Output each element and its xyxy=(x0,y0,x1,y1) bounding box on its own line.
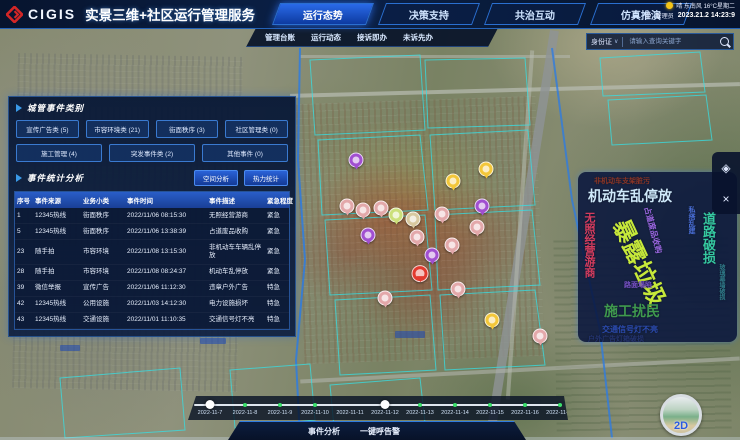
search-type-dropdown[interactable]: 身份证 ∨ xyxy=(591,37,618,47)
table-cell: 占道废品收购 xyxy=(209,228,267,236)
timeline-tick xyxy=(523,403,527,407)
timeline-date: 2022-11-17 xyxy=(546,410,568,416)
table-cell: 紧急 xyxy=(267,212,293,220)
table-header-cell: 事件来源 xyxy=(35,195,83,205)
table-cell: 特急 xyxy=(267,284,293,292)
table-cell: 12345热线 xyxy=(35,300,83,308)
table-cell: 特急 xyxy=(267,316,293,324)
timeline-date: 2022-11-16 xyxy=(511,410,539,416)
map-marker[interactable] xyxy=(356,203,371,218)
category-button[interactable]: 宣传广告类 (5) xyxy=(16,120,79,138)
category-row: 施工管理 (4)突发事件类 (2)其他事件 (0) xyxy=(9,141,295,165)
map-marker[interactable] xyxy=(389,208,404,223)
table-row[interactable]: 4312345热线交通设施2022/11/01 11:10:35交通信号灯不亮特… xyxy=(15,313,289,329)
table-cell: 特急 xyxy=(267,300,293,308)
category-button[interactable]: 市容环境类 (21) xyxy=(86,120,149,138)
table-header-cell: 事件描述 xyxy=(209,195,267,205)
map-marker[interactable] xyxy=(406,212,421,227)
table-cell: 紧急 xyxy=(267,228,293,236)
map-marker[interactable] xyxy=(374,201,389,216)
heat-statistics-button[interactable]: 热力统计 xyxy=(244,170,288,186)
table-cell: 23 xyxy=(17,248,35,256)
table-cell: 紧急 xyxy=(267,248,293,256)
tab-label: 共治互动 xyxy=(515,7,555,22)
timeline-date: 2022-11-15 xyxy=(476,410,504,416)
table-cell: 28 xyxy=(17,268,35,276)
subtab-operation-dynamics[interactable]: 运行动态 xyxy=(311,32,341,43)
dashboard-root: CIGIS 实景三维+社区运行管理服务 运行态势决策支持共治互动仿真推演 晴 东… xyxy=(0,0,740,440)
event-panel: 城管事件类别 宣传广告类 (5)市容环境类 (21)街面秩序 (3)社区管理类 … xyxy=(8,96,296,337)
table-cell: 43 xyxy=(17,316,35,324)
timeline-date: 2022-11-10 xyxy=(301,410,329,416)
chevron-down-icon: ∨ xyxy=(614,38,618,45)
timeline-track[interactable] xyxy=(194,404,562,406)
stats-actions: 空间分析 热力统计 xyxy=(194,170,288,186)
category-buttons: 宣传广告类 (5)市容环境类 (21)街面秩序 (3)社区管理类 (0)施工管理… xyxy=(9,117,295,165)
user-row: ⚙ 管理员 2023.21.2 14:23:9 xyxy=(645,11,735,20)
timeline-date: 2022-11-13 xyxy=(406,410,434,416)
section-title: 事件统计分析 xyxy=(27,172,84,184)
table-row[interactable]: 512345热线街面秩序2022/11/06 13:38:39占道废品收购紧急 xyxy=(15,224,289,240)
map-marker[interactable] xyxy=(378,291,393,306)
bottom-action-bar: 事件分析 一键呼告警 xyxy=(228,421,526,440)
gear-icon[interactable]: ⚙ xyxy=(645,11,652,20)
map-mode-compass[interactable]: 2D xyxy=(660,394,702,436)
table-cell: 交通信号灯不亮 xyxy=(209,316,267,324)
timeline-date: 2022-11-14 xyxy=(441,410,469,416)
tab-label: 决策支持 xyxy=(409,7,449,22)
one-key-alarm-button[interactable]: 一键呼告警 xyxy=(360,426,400,437)
sun-icon xyxy=(666,2,673,9)
event-table: 序号事件来源业务小类事件时间事件描述紧急程度 112345热线街面秩序2022/… xyxy=(14,191,290,330)
map-marker[interactable] xyxy=(361,228,376,243)
map-marker[interactable] xyxy=(451,282,466,297)
map-tools-icon[interactable]: × xyxy=(722,193,729,205)
table-cell: 2022/11/06 11:12:30 xyxy=(127,284,209,292)
table-cell: 2022/11/01 11:10:35 xyxy=(127,316,209,324)
subtab-proactive-service[interactable]: 未诉先办 xyxy=(403,32,433,43)
table-cell: 宣传广告 xyxy=(83,284,127,292)
table-cell: 2022/11/06 13:38:39 xyxy=(127,228,209,236)
tab-decision-support[interactable]: 决策支持 xyxy=(378,3,480,25)
table-header-cell: 业务小类 xyxy=(83,195,127,205)
tab-operation-status[interactable]: 运行态势 xyxy=(272,3,374,25)
table-cell: 公用设施 xyxy=(83,300,127,308)
map-marker[interactable] xyxy=(425,248,440,263)
table-cell: 非机动车车辆乱停放 xyxy=(209,244,267,260)
table-cell: 5 xyxy=(17,228,35,236)
table-cell: 12345热线 xyxy=(35,316,83,324)
map-marker[interactable] xyxy=(533,329,548,344)
wordcloud-term[interactable]: 私搭乱建 xyxy=(688,206,695,234)
timeline-date: 2022-11-7 xyxy=(198,410,223,416)
table-cell: 39 xyxy=(17,284,35,292)
section-arrow-icon xyxy=(16,174,22,182)
map-marker[interactable] xyxy=(435,207,450,222)
search-type-label: 身份证 xyxy=(591,37,612,47)
timeline-date: 2022-11-8 xyxy=(233,410,258,416)
cigis-logo-icon xyxy=(6,6,23,23)
section-stats-header: 事件统计分析 空间分析 热力统计 xyxy=(9,165,295,189)
table-cell: 2022/11/08 13:15:30 xyxy=(127,248,209,256)
table-cell: 违章户外广告 xyxy=(209,284,267,292)
map-toolbar: ◈ × xyxy=(712,152,740,214)
map-mode-label: 2D xyxy=(674,420,688,432)
divider xyxy=(622,37,623,47)
category-button[interactable]: 社区管理类 (0) xyxy=(225,120,288,138)
wordcloud-term[interactable]: 玻璃幕墙破损 xyxy=(718,264,724,300)
table-cell: 2022/11/03 14:12:30 xyxy=(127,300,209,308)
map-marker[interactable] xyxy=(485,313,500,328)
category-row: 宣传广告类 (5)市容环境类 (21)街面秩序 (3)社区管理类 (0) xyxy=(9,117,295,141)
table-row[interactable]: 39微信举报宣传广告2022/11/06 11:12:30违章户外广告特急 xyxy=(15,281,289,297)
table-row[interactable]: 112345热线街面秩序2022/11/06 08:15:30无照经营游商紧急 xyxy=(15,208,289,224)
table-cell: 电力设施损坏 xyxy=(209,300,267,308)
table-body: 112345热线街面秩序2022/11/06 08:15:30无照经营游商紧急5… xyxy=(15,208,289,329)
header-status-block: 晴 东南风 16°C星期二 ⚙ 管理员 2023.21.2 14:23:9 xyxy=(645,1,735,20)
map-marker[interactable] xyxy=(349,153,364,168)
table-header-cell: 序号 xyxy=(17,195,35,205)
timeline-handle[interactable] xyxy=(206,400,215,409)
wordcloud-term[interactable]: 户外广告灯箱破损 xyxy=(588,336,644,342)
section-title: 城管事件类别 xyxy=(27,102,84,114)
map-marker[interactable] xyxy=(475,199,490,214)
table-cell: 1 xyxy=(17,212,35,220)
tab-label: 运行态势 xyxy=(303,7,343,22)
category-button[interactable]: 施工管理 (4) xyxy=(16,144,102,162)
layers-icon[interactable]: ◈ xyxy=(721,162,730,174)
search-icon[interactable] xyxy=(720,37,729,46)
wordcloud-term[interactable]: 施工扰民 xyxy=(604,304,660,318)
main-tabs: 运行态势决策支持共治互动仿真推演 xyxy=(276,3,688,25)
wordcloud-term[interactable]: 交通信号灯不亮 xyxy=(602,326,658,334)
table-header-cell: 紧急程度 xyxy=(267,195,293,205)
table-cell: 交通设施 xyxy=(83,316,127,324)
subtab-management-ledger[interactable]: 管理台账 xyxy=(265,32,295,43)
table-row[interactable]: 4212345热线公用设施2022/11/03 14:12:30电力设施损坏特急 xyxy=(15,297,289,313)
table-cell: 街面秩序 xyxy=(83,212,127,220)
wordcloud-term[interactable]: 暴露垃圾 xyxy=(609,216,669,309)
user-label: 管理员 xyxy=(656,11,674,20)
page-title: 实景三维+社区运行管理服务 xyxy=(85,4,255,24)
section-arrow-icon xyxy=(16,104,22,112)
table-header: 序号事件来源业务小类事件时间事件描述紧急程度 xyxy=(15,192,289,208)
table-cell: 随手拍 xyxy=(35,248,83,256)
map-marker[interactable] xyxy=(446,174,461,189)
search-input[interactable] xyxy=(627,37,716,46)
table-header-cell: 事件时间 xyxy=(127,195,209,205)
category-button[interactable]: 其他事件 (0) xyxy=(202,144,288,162)
spatial-analysis-button[interactable]: 空间分析 xyxy=(194,170,238,186)
app-header: CIGIS 实景三维+社区运行管理服务 运行态势决策支持共治互动仿真推演 晴 东… xyxy=(0,0,740,29)
weather-text: 晴 东南风 16°C星期二 xyxy=(676,1,735,10)
timeline-tick xyxy=(558,403,562,407)
wordcloud-term[interactable]: 路面塌陷 xyxy=(624,282,652,289)
datetime-text: 2023.21.2 14:23:9 xyxy=(678,12,735,19)
wordcloud-term[interactable]: 无照经营游商 xyxy=(583,212,594,278)
table-cell: 市容环境 xyxy=(83,268,127,276)
table-cell: 随手拍 xyxy=(35,268,83,276)
category-button[interactable]: 街面秩序 (3) xyxy=(156,120,219,138)
sub-nav: 管理台账运行动态接诉即办未诉先办 xyxy=(246,28,498,47)
table-cell: 街面秩序 xyxy=(83,228,127,236)
logo-text: CIGIS xyxy=(28,6,76,22)
timeline-handle[interactable] xyxy=(381,400,390,409)
table-cell: 12345热线 xyxy=(35,212,83,220)
table-cell: 市容环境 xyxy=(83,248,127,256)
wordcloud-term[interactable]: 机动车乱停放 xyxy=(588,189,672,203)
timeline-date: 2022-11-12 xyxy=(371,410,399,416)
timeline-tick xyxy=(488,403,492,407)
table-row[interactable]: 23随手拍市容环境2022/11/08 13:15:30非机动车车辆乱停放紧急 xyxy=(15,240,289,264)
wordcloud-term[interactable]: 道路破损 xyxy=(702,212,715,264)
table-cell: 机动车乱停放 xyxy=(209,268,267,276)
timeline-slider: 2022-11-72022-11-82022-11-92022-11-10202… xyxy=(188,396,568,420)
category-button[interactable]: 突发事件类 (2) xyxy=(109,144,195,162)
table-cell: 2022/11/08 08:24:37 xyxy=(127,268,209,276)
table-cell: 无照经营游商 xyxy=(209,212,267,220)
table-row[interactable]: 28随手拍市容环境2022/11/08 08:24:37机动车乱停放紧急 xyxy=(15,265,289,281)
table-cell: 2022/11/06 08:15:30 xyxy=(127,212,209,220)
timeline-date: 2022-11-9 xyxy=(268,410,293,416)
search-bar: 身份证 ∨ xyxy=(586,33,734,50)
map-marker[interactable] xyxy=(445,238,460,253)
timeline-tick xyxy=(243,403,247,407)
map-marker[interactable] xyxy=(340,199,355,214)
timeline-tick xyxy=(313,403,317,407)
timeline-tick xyxy=(278,403,282,407)
timeline-tick xyxy=(453,403,457,407)
timeline-tick xyxy=(418,403,422,407)
timeline-date: 2022-11-11 xyxy=(336,410,363,416)
map-marker[interactable] xyxy=(470,220,485,235)
table-cell: 微信举报 xyxy=(35,284,83,292)
map-marker[interactable] xyxy=(410,230,425,245)
tab-co-governance[interactable]: 共治互动 xyxy=(484,3,586,25)
wordcloud-term[interactable]: 非机动车支架脏污 xyxy=(594,178,650,185)
map-marker[interactable] xyxy=(479,162,494,177)
table-cell: 12345热线 xyxy=(35,228,83,236)
section-categories-header: 城管事件类别 xyxy=(9,97,295,117)
weather-row: 晴 东南风 16°C星期二 xyxy=(666,1,735,10)
table-cell: 42 xyxy=(17,300,35,308)
subtab-complaint-handling[interactable]: 接诉即办 xyxy=(357,32,387,43)
event-analysis-button[interactable]: 事件分析 xyxy=(308,426,340,437)
map-marker[interactable] xyxy=(412,265,429,282)
table-cell: 紧急 xyxy=(267,268,293,276)
brand-block: CIGIS 实景三维+社区运行管理服务 xyxy=(6,4,255,24)
